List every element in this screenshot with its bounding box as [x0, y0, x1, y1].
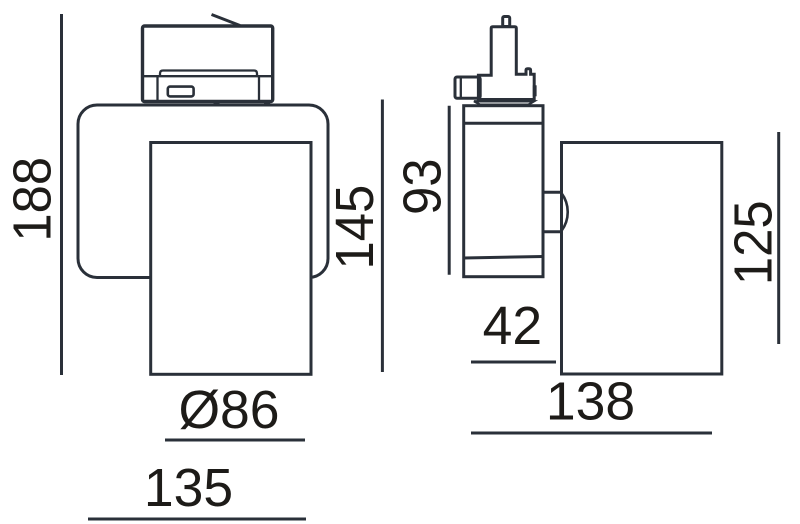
- svg-text:125: 125: [724, 200, 783, 285]
- svg-text:93: 93: [393, 158, 452, 215]
- svg-text:Ø86: Ø86: [178, 381, 279, 440]
- svg-text:188: 188: [3, 157, 62, 242]
- svg-text:145: 145: [326, 185, 385, 270]
- svg-text:135: 135: [144, 459, 233, 518]
- svg-text:42: 42: [483, 297, 543, 356]
- svg-text:138: 138: [546, 373, 635, 432]
